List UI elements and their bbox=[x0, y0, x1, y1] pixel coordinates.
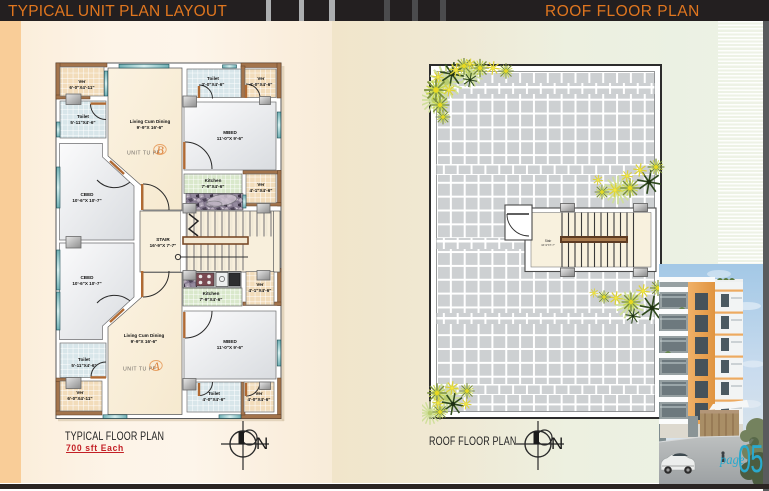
svg-text:3'-0"X4'-6": 3'-0"X4'-6" bbox=[202, 82, 225, 87]
svg-text:16'-9"X7'-7": 16'-9"X7'-7" bbox=[541, 243, 555, 247]
svg-text:6'-0"X4'-11": 6'-0"X4'-11" bbox=[67, 396, 92, 401]
svg-text:6'-0"X4'-11": 6'-0"X4'-11" bbox=[69, 85, 94, 90]
svg-text:A: A bbox=[152, 359, 161, 373]
svg-text:Ver: Ver bbox=[255, 391, 262, 396]
svg-text:Kitchen: Kitchen bbox=[205, 178, 222, 183]
svg-text:MBED: MBED bbox=[223, 130, 237, 135]
svg-text:4'-0"X4'-6": 4'-0"X4'-6" bbox=[203, 397, 226, 402]
svg-text:Kitchen: Kitchen bbox=[203, 291, 220, 296]
svg-text:Ver: Ver bbox=[257, 182, 264, 187]
svg-text:10'-6"X 10'-7": 10'-6"X 10'-7" bbox=[72, 198, 101, 203]
svg-text:Ver: Ver bbox=[256, 282, 263, 287]
svg-text:11'-0"X 9'-6": 11'-0"X 9'-6" bbox=[217, 345, 243, 350]
svg-text:9'-9"X 16'-6": 9'-9"X 16'-6" bbox=[131, 339, 158, 344]
svg-text:STAIR: STAIR bbox=[156, 237, 170, 242]
svg-text:10'-6"X 10'-7": 10'-6"X 10'-7" bbox=[72, 281, 101, 286]
svg-text:Toilet: Toilet bbox=[207, 76, 219, 81]
svg-text:Stair: Stair bbox=[545, 239, 552, 243]
svg-text:7'-9"X4'-6": 7'-9"X4'-6" bbox=[200, 297, 223, 302]
svg-text:16'-9"X 7'-7": 16'-9"X 7'-7" bbox=[150, 243, 177, 248]
svg-text:Living Cum Dining: Living Cum Dining bbox=[130, 119, 171, 124]
svg-text:4'-0"X4'-6": 4'-0"X4'-6" bbox=[248, 397, 271, 402]
svg-text:B: B bbox=[157, 143, 165, 157]
svg-text:9'-9"X 16'-6": 9'-9"X 16'-6" bbox=[137, 125, 164, 130]
svg-text:CBED: CBED bbox=[80, 192, 94, 197]
svg-text:Toilet: Toilet bbox=[77, 114, 89, 119]
svg-text:CBED: CBED bbox=[80, 275, 94, 280]
svg-text:Ver: Ver bbox=[76, 390, 83, 395]
svg-text:5'-11"X4'-6": 5'-11"X4'-6" bbox=[70, 120, 95, 125]
svg-text:N: N bbox=[551, 434, 563, 453]
svg-text:5'-11"X4'-6": 5'-11"X4'-6" bbox=[71, 363, 96, 368]
svg-text:Living Cum Dining: Living Cum Dining bbox=[124, 333, 165, 338]
svg-text:7'-9"X4'-6": 7'-9"X4'-6" bbox=[202, 184, 225, 189]
svg-text:11'-0"X 9'-6": 11'-0"X 9'-6" bbox=[217, 136, 243, 141]
svg-text:4'-1"X4'-6": 4'-1"X4'-6" bbox=[249, 288, 272, 293]
svg-text:Toilet: Toilet bbox=[208, 391, 220, 396]
svg-text:4'-1"X4'-6": 4'-1"X4'-6" bbox=[250, 188, 273, 193]
svg-text:4'-0"X4'-6": 4'-0"X4'-6" bbox=[250, 82, 273, 87]
svg-text:Ver: Ver bbox=[257, 76, 264, 81]
svg-text:MBED: MBED bbox=[223, 339, 237, 344]
svg-text:Ver: Ver bbox=[78, 79, 85, 84]
svg-text:Toilet: Toilet bbox=[78, 357, 90, 362]
svg-text:N: N bbox=[256, 434, 268, 453]
